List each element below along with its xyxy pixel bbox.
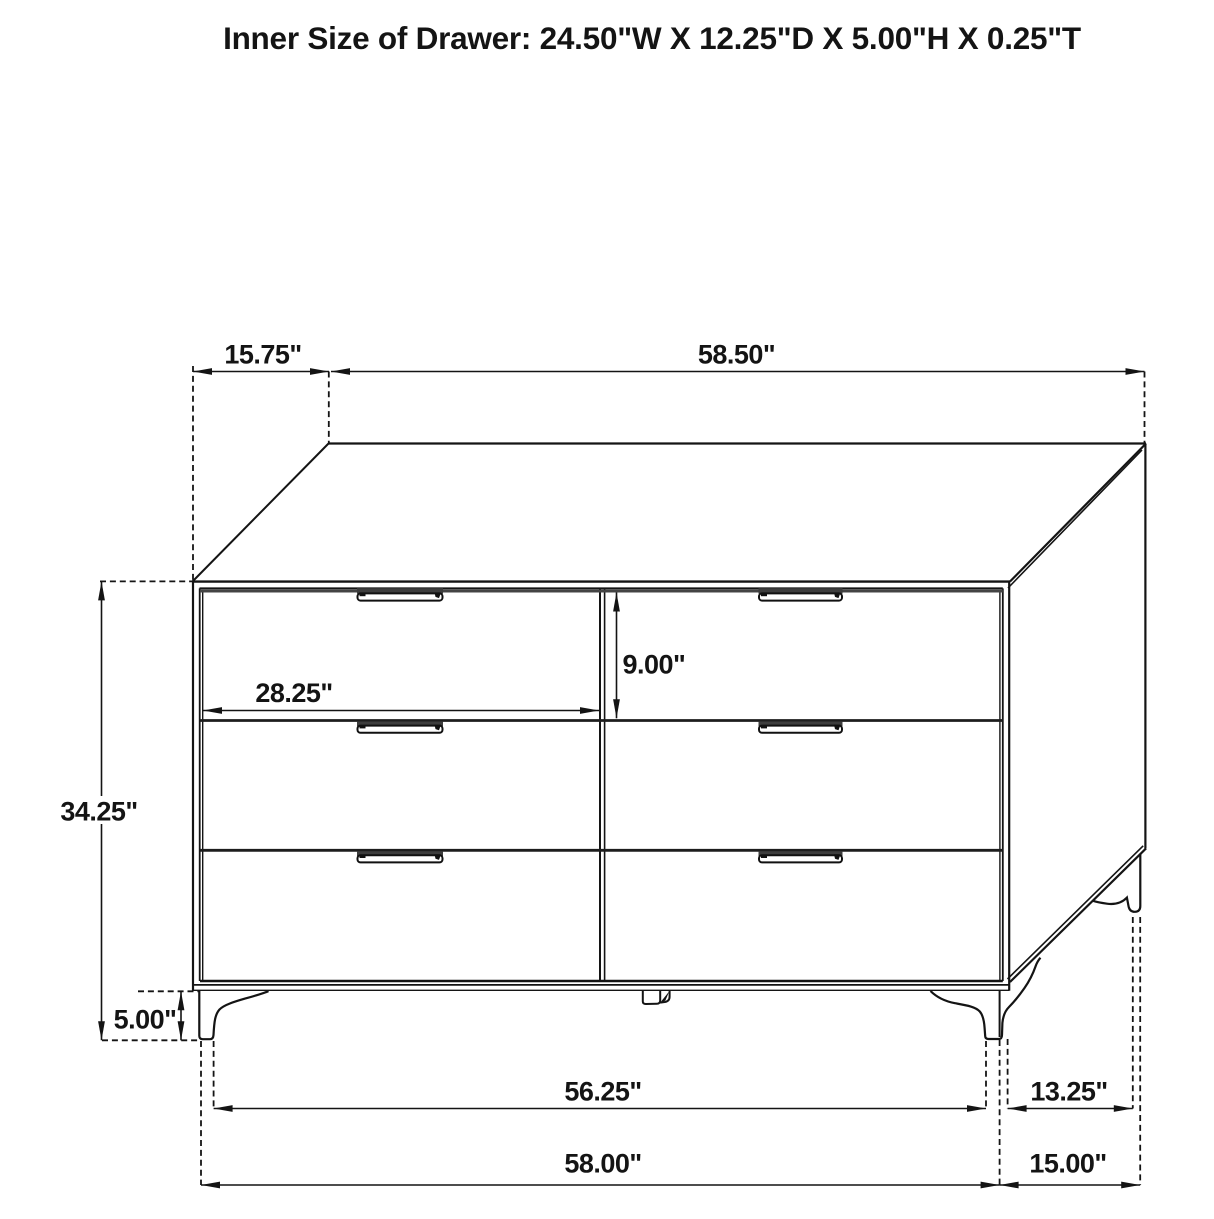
svg-text:5.00": 5.00" [114, 1004, 177, 1034]
svg-text:15.00": 15.00" [1029, 1148, 1106, 1178]
svg-text:9.00": 9.00" [623, 650, 686, 680]
svg-text:58.00": 58.00" [564, 1148, 641, 1178]
svg-text:34.25": 34.25" [60, 797, 137, 827]
svg-text:15.75": 15.75" [224, 339, 301, 369]
svg-text:13.25": 13.25" [1030, 1077, 1107, 1107]
svg-text:58.50": 58.50" [698, 339, 775, 369]
svg-text:28.25": 28.25" [255, 678, 332, 708]
svg-text:56.25": 56.25" [564, 1077, 641, 1107]
svg-text:Inner Size of Drawer: 24.50"W: Inner Size of Drawer: 24.50"W X 12.25"D … [223, 20, 1081, 56]
